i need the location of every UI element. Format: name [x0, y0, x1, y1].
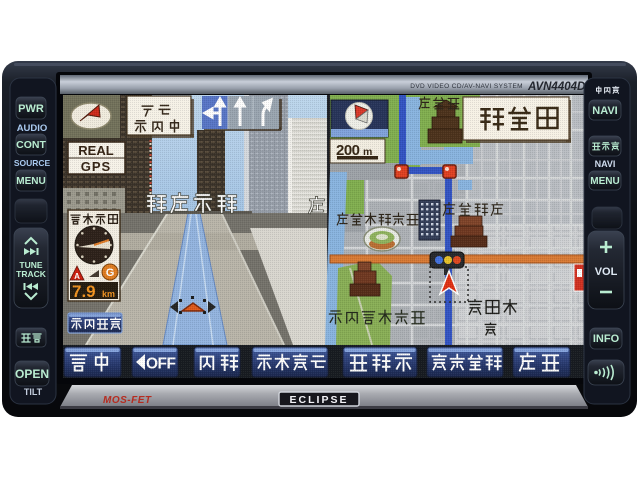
- svg-text:AUDIO: AUDIO: [17, 123, 48, 134]
- svg-text:INFO: INFO: [593, 333, 620, 345]
- svg-text:TILT: TILT: [24, 387, 43, 397]
- svg-text:ECLIPSE: ECLIPSE: [290, 394, 349, 406]
- svg-text:NAVI: NAVI: [592, 105, 617, 117]
- svg-text:NAVI: NAVI: [595, 159, 616, 169]
- svg-text:AVN4404D: AVN4404D: [527, 81, 585, 93]
- svg-text:MOS-FET: MOS-FET: [103, 395, 152, 406]
- svg-text:PWR: PWR: [18, 103, 44, 115]
- svg-text:OPEN: OPEN: [15, 367, 49, 381]
- svg-text:TRACK: TRACK: [16, 269, 47, 279]
- svg-text:DVD VIDEO CD/AV-NAVI SYSTEM: DVD VIDEO CD/AV-NAVI SYSTEM: [410, 83, 523, 90]
- svg-text:CONT: CONT: [16, 139, 46, 151]
- svg-text:MENU: MENU: [16, 176, 45, 187]
- svg-text:MENU: MENU: [590, 176, 619, 187]
- svg-text:VOL: VOL: [595, 266, 618, 278]
- svg-text:SOURCE: SOURCE: [14, 158, 51, 168]
